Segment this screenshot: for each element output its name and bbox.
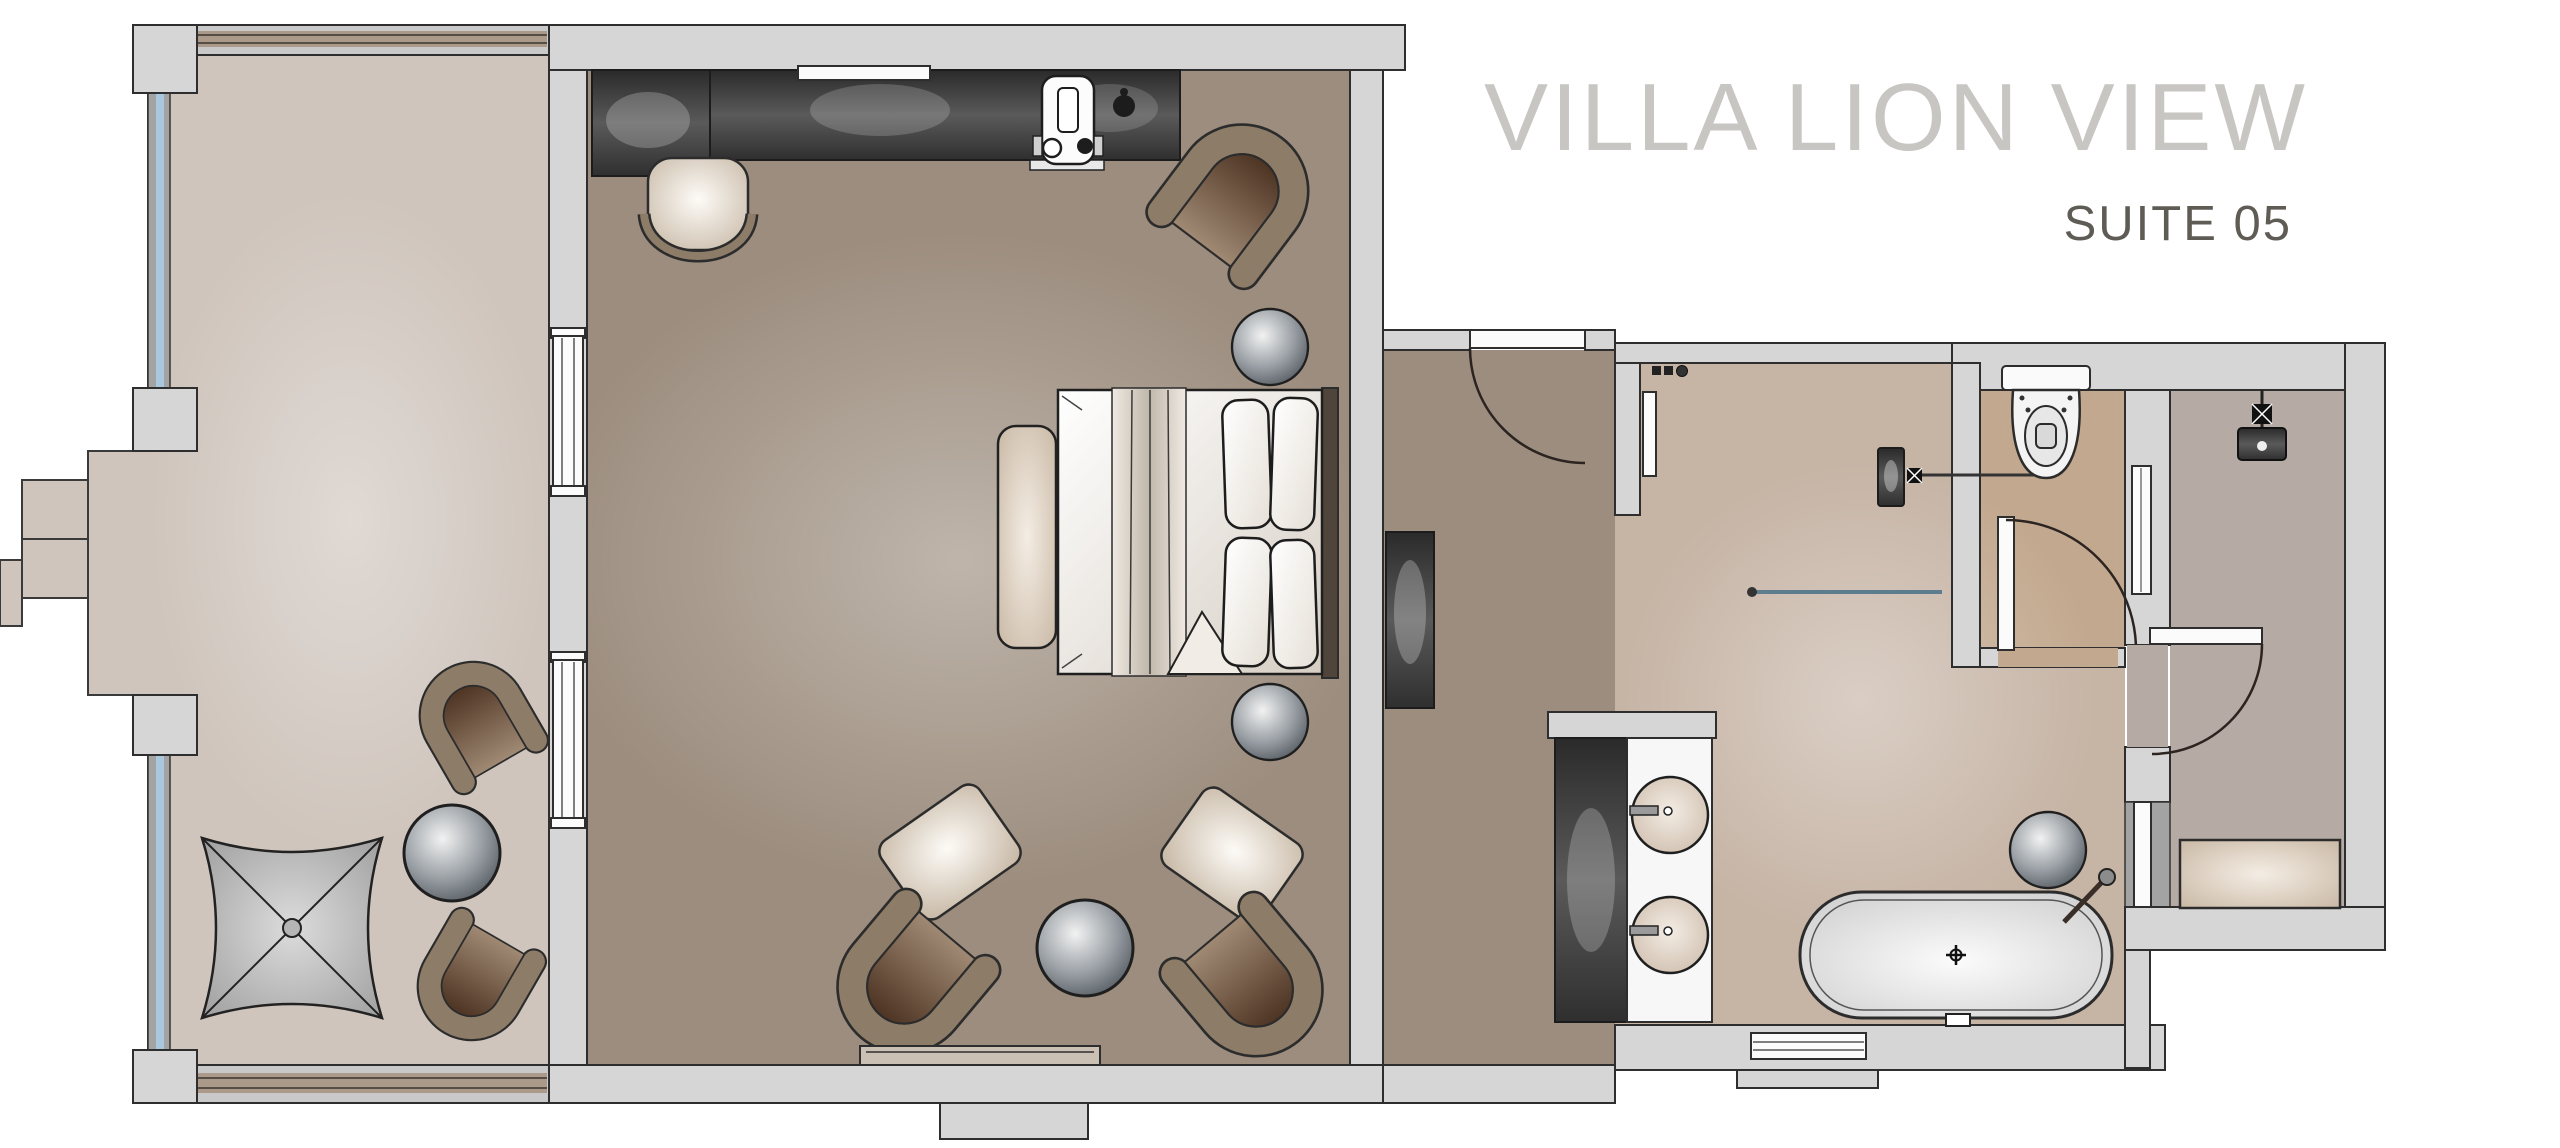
double-bed (1058, 388, 1338, 678)
bath-step (1737, 1070, 1878, 1088)
shower-bench (2180, 840, 2340, 908)
desk-chair (644, 158, 752, 256)
window (551, 328, 585, 496)
vanity (1548, 712, 1716, 1022)
terrace-column (133, 388, 197, 451)
sphere-lamp (1232, 309, 1308, 385)
floor-plan-page: VILLA LION VIEW SUITE 05 (0, 0, 2560, 1148)
bedroom-right-wall (1350, 70, 1383, 1065)
sphere-stool (2010, 812, 2086, 888)
shower-right-wall (2345, 343, 2385, 950)
glass-panel (2125, 802, 2170, 907)
bath-top-wall (1615, 343, 1952, 363)
hall-furniture (1386, 532, 1434, 708)
terrace-column (133, 1050, 197, 1103)
bath-bottom-wall (1615, 1025, 2165, 1070)
sphere-side-table (404, 805, 500, 901)
terrace-sliding-glass-bottom (148, 1065, 549, 1103)
towel-rail (1643, 392, 1656, 476)
sphere-lamp (1232, 684, 1308, 760)
bedroom-entry-step (940, 1103, 1088, 1139)
bedroom-bottom-wall (549, 1065, 1383, 1103)
hall-bottom-wall (1383, 1065, 1615, 1103)
plan-title: VILLA LION VIEW (1484, 64, 2308, 171)
wc-left-wall (1952, 363, 1980, 667)
floor-plan-drawing: VILLA LION VIEW SUITE 05 (0, 0, 2560, 1148)
glass-panel (2132, 466, 2151, 594)
washbasin (1630, 897, 1708, 973)
hall-top-wall (1383, 330, 1470, 350)
garden-steps (0, 480, 88, 626)
terrace-sliding-glass-top (148, 25, 549, 55)
shower-wall-pillar (2125, 747, 2170, 802)
bedroom-top-wall (549, 25, 1405, 70)
shower-floor (2170, 390, 2345, 907)
window (1751, 1033, 1866, 1059)
washbasin (1630, 777, 1708, 853)
bath-right-wall (2125, 950, 2150, 1068)
window (551, 652, 585, 828)
terrace-bedroom-wall (549, 52, 587, 1065)
sphere-side-table (1037, 900, 1133, 996)
hall-top-wall (1585, 330, 1615, 350)
wall-shelf (798, 66, 930, 80)
terrace-column (133, 25, 197, 93)
plan-subtitle: SUITE 05 (2064, 197, 2292, 251)
wall-accessories (1652, 366, 1688, 377)
espresso-machine (1030, 76, 1104, 170)
shower-bottom-wall (2125, 907, 2385, 950)
wardrobe-back (1555, 738, 1627, 1022)
parasol (202, 838, 382, 1018)
hearth-ledge (860, 1046, 1100, 1065)
bed-bench (998, 426, 1056, 648)
terrace-column (133, 695, 197, 755)
tv-panel (1386, 532, 1434, 708)
plan-header: VILLA LION VIEW SUITE 05 (1484, 64, 2308, 251)
hall-bath-wall (1615, 350, 1640, 515)
